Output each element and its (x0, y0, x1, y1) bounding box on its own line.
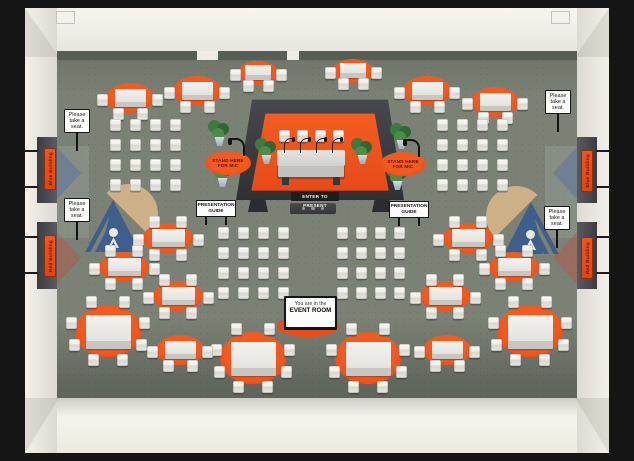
chair[interactable] (110, 159, 121, 171)
wall-seam (25, 186, 38, 188)
chair[interactable] (491, 339, 502, 351)
chair[interactable] (477, 139, 488, 151)
chair[interactable] (281, 366, 292, 378)
chair[interactable] (541, 296, 552, 308)
chair[interactable] (495, 245, 506, 257)
stage-leg (248, 199, 268, 212)
sign-text: PRESENTATIONGUIDE (196, 200, 236, 217)
chair[interactable] (337, 247, 348, 259)
chair[interactable] (113, 108, 124, 120)
chair[interactable] (152, 94, 163, 106)
chair[interactable] (203, 292, 214, 304)
wall-seam (25, 150, 38, 152)
chair[interactable] (262, 381, 273, 393)
chair[interactable] (238, 267, 249, 279)
chair[interactable] (449, 216, 460, 228)
chair[interactable] (539, 263, 550, 275)
table[interactable] (429, 287, 462, 300)
top-exit-door[interactable] (56, 11, 75, 24)
sign-legs (196, 217, 236, 225)
chair[interactable] (346, 323, 357, 335)
chair[interactable] (479, 263, 490, 275)
chair[interactable] (139, 317, 150, 329)
chair[interactable] (356, 227, 367, 239)
chair[interactable] (263, 80, 274, 92)
sign-text: Pleasetake aseat. (64, 198, 90, 222)
chair[interactable] (329, 366, 340, 378)
table[interactable] (152, 229, 185, 242)
microphone-icon (316, 138, 326, 153)
chair[interactable] (170, 159, 181, 171)
chair[interactable] (150, 159, 161, 171)
chair[interactable] (137, 108, 148, 120)
table[interactable] (115, 89, 146, 102)
chair[interactable] (86, 296, 97, 308)
wall-seam (25, 272, 38, 274)
chair[interactable] (488, 317, 499, 329)
chair[interactable] (159, 307, 170, 319)
chair[interactable] (278, 267, 289, 279)
chair[interactable] (187, 360, 198, 372)
chair[interactable] (414, 346, 425, 358)
chair[interactable] (130, 179, 141, 191)
table[interactable] (508, 315, 553, 341)
chair[interactable] (457, 179, 468, 191)
table[interactable] (340, 63, 366, 73)
chair[interactable] (69, 339, 80, 351)
chair[interactable] (449, 249, 460, 261)
chair[interactable] (238, 287, 249, 299)
chair[interactable] (159, 274, 170, 286)
chair[interactable] (396, 366, 407, 378)
enter-to-present-button[interactable]: ENTER TO PRESENT (291, 192, 339, 201)
chair[interactable] (230, 69, 241, 81)
microphone-icon (284, 138, 294, 153)
chair[interactable] (176, 249, 187, 261)
chair[interactable] (394, 247, 405, 259)
chair[interactable] (258, 267, 269, 279)
chair[interactable] (231, 323, 242, 335)
chair[interactable] (326, 344, 337, 356)
chair[interactable] (202, 346, 213, 358)
chair[interactable] (150, 119, 161, 131)
chair[interactable] (66, 317, 77, 329)
chair[interactable] (284, 344, 295, 356)
chair[interactable] (348, 381, 359, 393)
chair[interactable] (110, 139, 121, 151)
chair[interactable] (218, 227, 229, 239)
chair[interactable] (371, 67, 382, 79)
chair[interactable] (356, 247, 367, 259)
chair[interactable] (258, 287, 269, 299)
chair[interactable] (218, 267, 229, 279)
chair[interactable] (453, 307, 464, 319)
chair[interactable] (97, 94, 108, 106)
chair[interactable] (379, 323, 390, 335)
table[interactable] (432, 341, 463, 354)
table[interactable] (182, 82, 213, 95)
chair[interactable] (437, 179, 448, 191)
chair[interactable] (495, 278, 506, 290)
chair[interactable] (394, 227, 405, 239)
chair[interactable] (476, 249, 487, 261)
chair[interactable] (449, 87, 460, 99)
chair[interactable] (204, 101, 215, 113)
chair[interactable] (433, 234, 444, 246)
banner-label: Blue Building (48, 152, 53, 186)
chair[interactable] (238, 227, 249, 239)
plant-pot (217, 178, 228, 187)
chair[interactable] (338, 78, 349, 90)
plant-pot (357, 155, 368, 164)
chair[interactable] (149, 216, 160, 228)
back-wall (57, 51, 577, 60)
building-banner-blue_building: Blue Building (44, 148, 56, 190)
chair[interactable] (186, 307, 197, 319)
chair[interactable] (150, 139, 161, 151)
building-banner-red_building: Red Building (44, 235, 56, 277)
sign-post (556, 230, 559, 248)
potted-plant (350, 138, 374, 168)
chair[interactable] (477, 179, 488, 191)
table[interactable] (245, 65, 271, 75)
chair[interactable] (132, 245, 143, 257)
please-take-a-seat-sign: Pleasetake aseat. (545, 90, 571, 132)
chair[interactable] (130, 139, 141, 151)
table[interactable] (231, 342, 276, 368)
chair[interactable] (358, 78, 369, 90)
chair[interactable] (457, 119, 468, 131)
outer-wall-top (25, 8, 609, 57)
sign-text: Pleasetake aseat. (544, 206, 570, 230)
top-exit-door[interactable] (551, 11, 570, 24)
logo-person-head (526, 230, 535, 239)
chair[interactable] (434, 101, 445, 113)
sign-post (76, 133, 79, 151)
chair[interactable] (147, 346, 158, 358)
chair[interactable] (149, 263, 160, 275)
chair[interactable] (539, 354, 550, 366)
chair[interactable] (437, 139, 448, 151)
chair[interactable] (377, 381, 388, 393)
chair[interactable] (410, 101, 421, 113)
chair[interactable] (375, 227, 386, 239)
microphone-stand-icon (405, 139, 420, 157)
chair[interactable] (470, 292, 481, 304)
chair[interactable] (497, 139, 508, 151)
room-location-sign: You are in the EVENT ROOM (284, 296, 337, 330)
chair[interactable] (119, 296, 130, 308)
chair[interactable] (508, 296, 519, 308)
table[interactable] (108, 258, 141, 271)
banner-label: Red Building (585, 242, 590, 274)
chair[interactable] (522, 278, 533, 290)
chair[interactable] (558, 339, 569, 351)
chair[interactable] (410, 292, 421, 304)
chair[interactable] (437, 119, 448, 131)
table[interactable] (498, 258, 531, 271)
chair[interactable] (170, 119, 181, 131)
chair[interactable] (163, 360, 174, 372)
chair[interactable] (497, 179, 508, 191)
table[interactable] (452, 229, 485, 242)
chair[interactable] (477, 119, 488, 131)
sign-post (76, 222, 79, 240)
chair[interactable] (130, 119, 141, 131)
chair[interactable] (337, 227, 348, 239)
chair[interactable] (105, 245, 116, 257)
presentation-guide-sign: PRESENTATIONGUIDE (196, 200, 236, 225)
chair[interactable] (278, 227, 289, 239)
table[interactable] (162, 287, 195, 300)
chair[interactable] (453, 274, 464, 286)
chair[interactable] (110, 119, 121, 131)
wall-seam (596, 186, 609, 188)
chair[interactable] (517, 98, 528, 110)
microphone-icon (332, 138, 342, 153)
chair[interactable] (243, 80, 254, 92)
microphone-stand-icon (230, 138, 245, 156)
chair[interactable] (510, 354, 521, 366)
chair[interactable] (130, 159, 141, 171)
wall-seam (596, 150, 609, 152)
chair[interactable] (233, 381, 244, 393)
chair[interactable] (375, 287, 386, 299)
chair[interactable] (469, 346, 480, 358)
chair[interactable] (437, 159, 448, 171)
chair[interactable] (356, 267, 367, 279)
table[interactable] (86, 315, 131, 341)
chair[interactable] (276, 69, 287, 81)
sign-legs (389, 218, 429, 226)
logo-person-head (109, 228, 118, 237)
chair[interactable] (219, 87, 230, 99)
chair[interactable] (457, 159, 468, 171)
please-take-a-seat-sign: Pleasetake aseat. (64, 109, 90, 151)
sign-text: Pleasetake aseat. (64, 109, 90, 133)
chair[interactable] (258, 227, 269, 239)
chair[interactable] (278, 247, 289, 259)
stand-here-for-mic-spot[interactable]: STAND HEREFOR MIC (205, 137, 251, 177)
chair[interactable] (170, 139, 181, 151)
chair[interactable] (180, 101, 191, 113)
chair[interactable] (426, 274, 437, 286)
chair[interactable] (522, 245, 533, 257)
plant-pot (261, 155, 272, 164)
please-take-a-seat-sign: Pleasetake aseat. (64, 198, 90, 240)
chair[interactable] (214, 366, 225, 378)
chair[interactable] (426, 307, 437, 319)
chair[interactable] (561, 317, 572, 329)
chair[interactable] (356, 287, 367, 299)
chair[interactable] (88, 354, 99, 366)
chair[interactable] (110, 179, 121, 191)
chair[interactable] (462, 98, 473, 110)
chair[interactable] (218, 287, 229, 299)
chair[interactable] (176, 216, 187, 228)
banner-label: Red Building (48, 240, 53, 272)
chair[interactable] (105, 278, 116, 290)
chair[interactable] (218, 247, 229, 259)
chair[interactable] (258, 247, 269, 259)
chair[interactable] (375, 247, 386, 259)
chair[interactable] (337, 287, 348, 299)
plant-pot (392, 181, 403, 190)
chair[interactable] (117, 354, 128, 366)
mic-spot-label: FOR MIC (393, 164, 414, 169)
chair[interactable] (264, 323, 275, 335)
chair[interactable] (238, 247, 249, 259)
wall-seam (596, 272, 609, 274)
microphone-icon (300, 138, 310, 153)
chair[interactable] (497, 159, 508, 171)
sign-text: PRESENTATIONGUIDE (389, 201, 429, 218)
building-banner-red_building: Red Building (581, 237, 593, 279)
room-sign-line2: EVENT ROOM (286, 307, 335, 315)
chair[interactable] (394, 87, 405, 99)
wall-seam (596, 236, 609, 238)
chair[interactable] (454, 360, 465, 372)
chair[interactable] (150, 179, 161, 191)
chair[interactable] (394, 287, 405, 299)
chair[interactable] (477, 159, 488, 171)
chair[interactable] (497, 119, 508, 131)
outer-wall-bottom (25, 398, 609, 453)
chair[interactable] (186, 274, 197, 286)
chair[interactable] (136, 339, 147, 351)
building-banner-blue_building: Blue Building (581, 150, 593, 192)
wall-seam (25, 236, 38, 238)
potted-plant (254, 138, 278, 168)
sign-post (557, 114, 560, 132)
chair[interactable] (193, 234, 204, 246)
chair[interactable] (375, 267, 386, 279)
chair[interactable] (143, 292, 154, 304)
chair[interactable] (476, 216, 487, 228)
table[interactable] (346, 342, 391, 368)
chair[interactable] (337, 267, 348, 279)
chair[interactable] (325, 67, 336, 79)
chair[interactable] (164, 87, 175, 99)
chair[interactable] (89, 263, 100, 275)
please-take-a-seat-sign: Pleasetake aseat. (544, 206, 570, 248)
event-room-view: ENTER TO PRESENT Pleasetake aseat.Please… (0, 0, 634, 461)
table[interactable] (412, 82, 443, 95)
stand-here-for-mic-spot[interactable]: STAND HEREFOR MIC (380, 138, 426, 178)
table[interactable] (165, 341, 196, 354)
back-wall-door[interactable] (197, 51, 218, 60)
table[interactable] (480, 93, 511, 106)
banner-label: Blue Building (585, 154, 590, 188)
presentation-guide-sign: PRESENTATIONGUIDE (389, 201, 429, 226)
chair[interactable] (394, 267, 405, 279)
chair[interactable] (170, 179, 181, 191)
chair[interactable] (132, 278, 143, 290)
mic-spot-label: FOR MIC (218, 163, 239, 168)
chair[interactable] (457, 139, 468, 151)
chair[interactable] (399, 344, 410, 356)
chair[interactable] (430, 360, 441, 372)
chair[interactable] (149, 249, 160, 261)
back-wall-door[interactable] (287, 51, 299, 60)
sign-text: Pleasetake aseat. (545, 90, 571, 114)
